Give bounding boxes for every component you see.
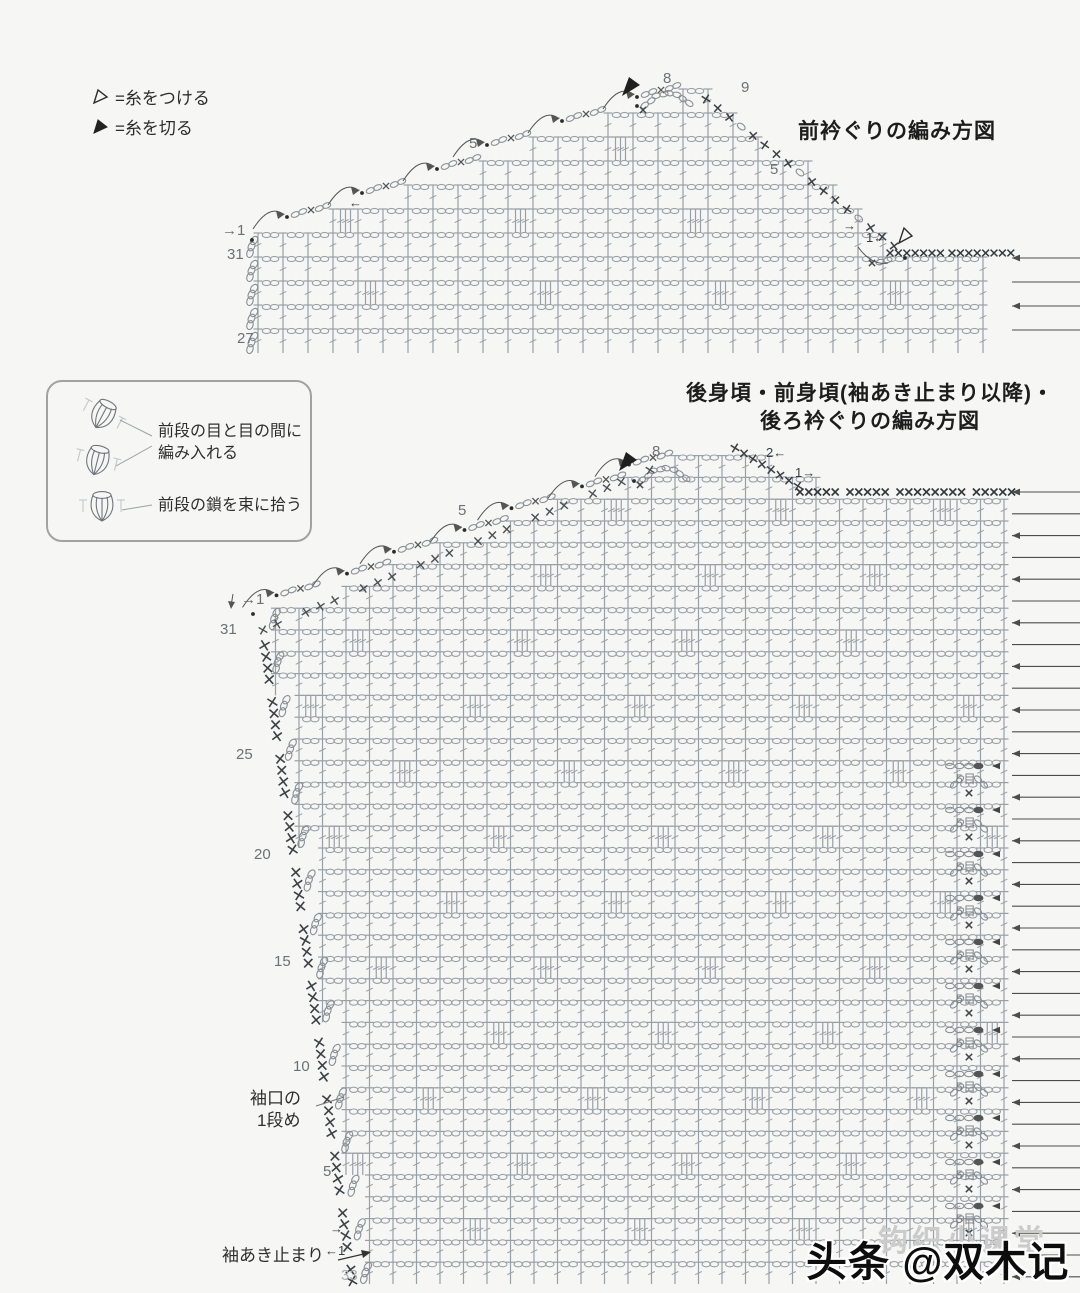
chart2-row-start-label: →1 bbox=[241, 592, 264, 607]
cut-yarn-icon bbox=[92, 119, 109, 135]
chart2-row1-right-label: 1→ bbox=[795, 466, 815, 479]
chart1-row1-left-label: 1← bbox=[866, 231, 886, 244]
chart2-row1-left-label: ←1 bbox=[325, 1244, 345, 1257]
five-stitch-label: 5目 bbox=[956, 858, 977, 875]
five-stitch-label: 5目 bbox=[956, 1078, 977, 1095]
five-stitch-label: 5目 bbox=[956, 1122, 977, 1139]
legend-attach-yarn: =糸をつける bbox=[92, 84, 210, 109]
chart1-row1-label: →1 bbox=[222, 223, 245, 238]
chart2-title-line2: 後ろ衿ぐりの編み方図 bbox=[630, 411, 1080, 432]
chart1-row31-label: 31 bbox=[227, 247, 244, 262]
chart2-row33-label: 33 bbox=[341, 1268, 358, 1283]
five-stitch-label: 5目 bbox=[956, 770, 977, 787]
watermark-main: 头条 @双木记编织 bbox=[806, 1228, 1080, 1293]
legend-attach-label: =糸をつける bbox=[115, 84, 210, 109]
chart1-row27-label: 27 bbox=[237, 331, 254, 346]
five-stitch-label: 5目 bbox=[956, 1166, 977, 1183]
chart2-row31-label: 31 bbox=[220, 622, 237, 637]
crochet-diagram bbox=[0, 0, 1080, 1293]
chart2-row25-label: 25 bbox=[236, 747, 253, 762]
chart1-title: 前衿ぐりの編み方図 bbox=[798, 121, 996, 142]
chart1-neck5-label: 5 bbox=[770, 162, 778, 177]
chart1-turn-right-arrow: → bbox=[843, 219, 856, 232]
chart2-peak-label: 8 bbox=[652, 444, 660, 459]
five-stitch-label: 5目 bbox=[956, 902, 977, 919]
legend-bundle-caption: 前段の鎖を束に拾う bbox=[158, 498, 302, 514]
legend-between-line1: 前段の目と目の間に bbox=[158, 424, 302, 440]
legend-cut-yarn: =糸を切る bbox=[92, 114, 193, 139]
pattern-page: =糸をつける =糸を切る 前衿ぐりの編み方図 →1 31 27 8 9 5 5 … bbox=[0, 0, 1080, 1293]
legend-between-line2: 編み入れる bbox=[158, 446, 238, 462]
chart2-row15-label: 15 bbox=[274, 954, 291, 969]
five-stitch-label: 5目 bbox=[956, 1210, 977, 1227]
chart2-turn-right-arrow: → bbox=[330, 1222, 343, 1235]
chart2-step5-label: 5 bbox=[458, 503, 466, 518]
five-stitch-label: 5目 bbox=[956, 1034, 977, 1051]
chart1-turn-left-arrow: ← bbox=[349, 196, 362, 209]
chart2-row2-left-label: 2← bbox=[766, 446, 786, 459]
chart1-step5-label: 5 bbox=[469, 136, 477, 151]
chart2-row20-label: 20 bbox=[254, 847, 271, 862]
legend-cut-label: =糸を切る bbox=[115, 114, 193, 139]
armhole-stop-label: 袖あき止まり bbox=[222, 1247, 324, 1264]
chart1-peak-label: 8 bbox=[663, 71, 671, 86]
cuff-label-line2: 1段め bbox=[257, 1112, 300, 1129]
chart2-row10-label: 10 bbox=[293, 1059, 310, 1074]
chart2-title-line1: 後身頃・前身頃(袖あき止まり以降)・ bbox=[630, 383, 1080, 404]
chart2-row5-label: 5 bbox=[323, 1164, 331, 1179]
five-stitch-label: 5目 bbox=[956, 990, 977, 1007]
chart1-neck-top-label: 9 bbox=[741, 80, 749, 95]
five-stitch-label: 5目 bbox=[956, 814, 977, 831]
attach-yarn-icon bbox=[92, 89, 109, 105]
five-stitch-label: 5目 bbox=[956, 946, 977, 963]
cuff-label-line1: 袖口の bbox=[250, 1090, 301, 1107]
